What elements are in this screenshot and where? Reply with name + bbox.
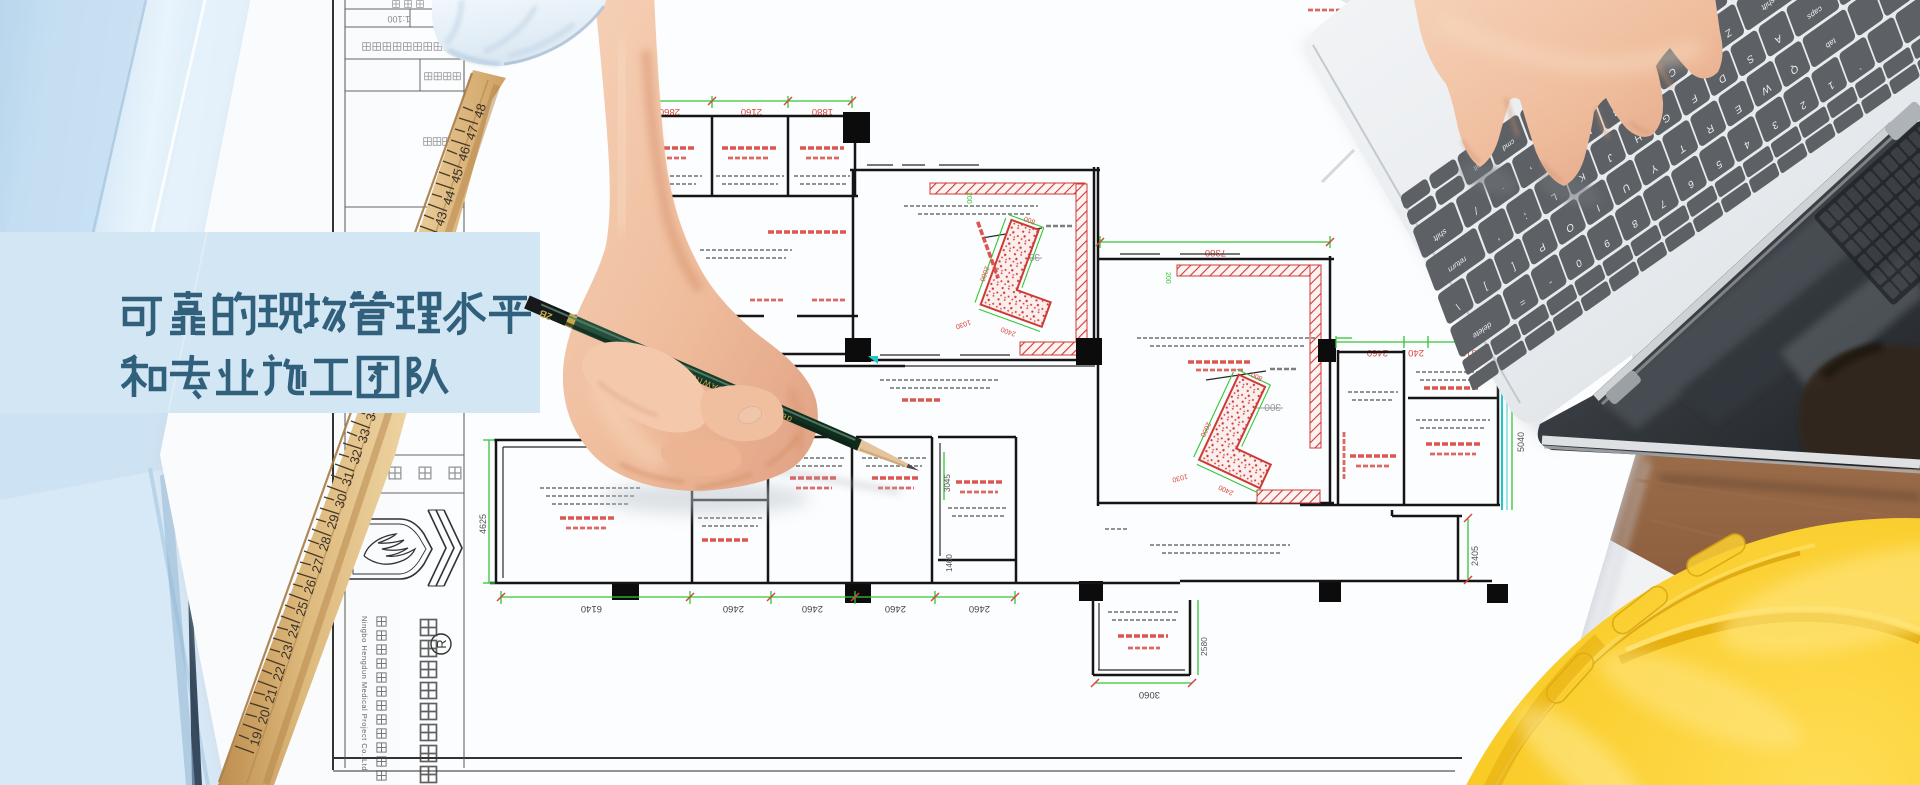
svg-text:3060: 3060: [1139, 689, 1160, 700]
svg-text:7380: 7380: [1205, 247, 1226, 258]
svg-text:3045: 3045: [943, 474, 952, 492]
svg-text:5040: 5040: [1516, 432, 1526, 452]
svg-text:2460: 2460: [885, 603, 906, 614]
svg-text:200: 200: [965, 192, 972, 204]
svg-text:300: 300: [1264, 401, 1281, 412]
svg-text:240: 240: [1408, 347, 1424, 358]
svg-text:2460: 2460: [802, 603, 823, 614]
svg-text:200: 200: [1164, 272, 1171, 284]
svg-text:1460: 1460: [945, 554, 954, 572]
svg-text:6140: 6140: [581, 603, 602, 614]
svg-text:2405: 2405: [1470, 546, 1480, 566]
svg-text:4625: 4625: [478, 514, 488, 534]
svg-text:2460: 2460: [969, 603, 990, 614]
svg-text:2460: 2460: [723, 603, 744, 614]
svg-text:1:100: 1:100: [387, 14, 410, 24]
svg-text:Ningbo Hengdun Medical Project: Ningbo Hengdun Medical Project Co.,Ltd: [360, 616, 369, 771]
svg-text:2580: 2580: [1199, 637, 1209, 656]
